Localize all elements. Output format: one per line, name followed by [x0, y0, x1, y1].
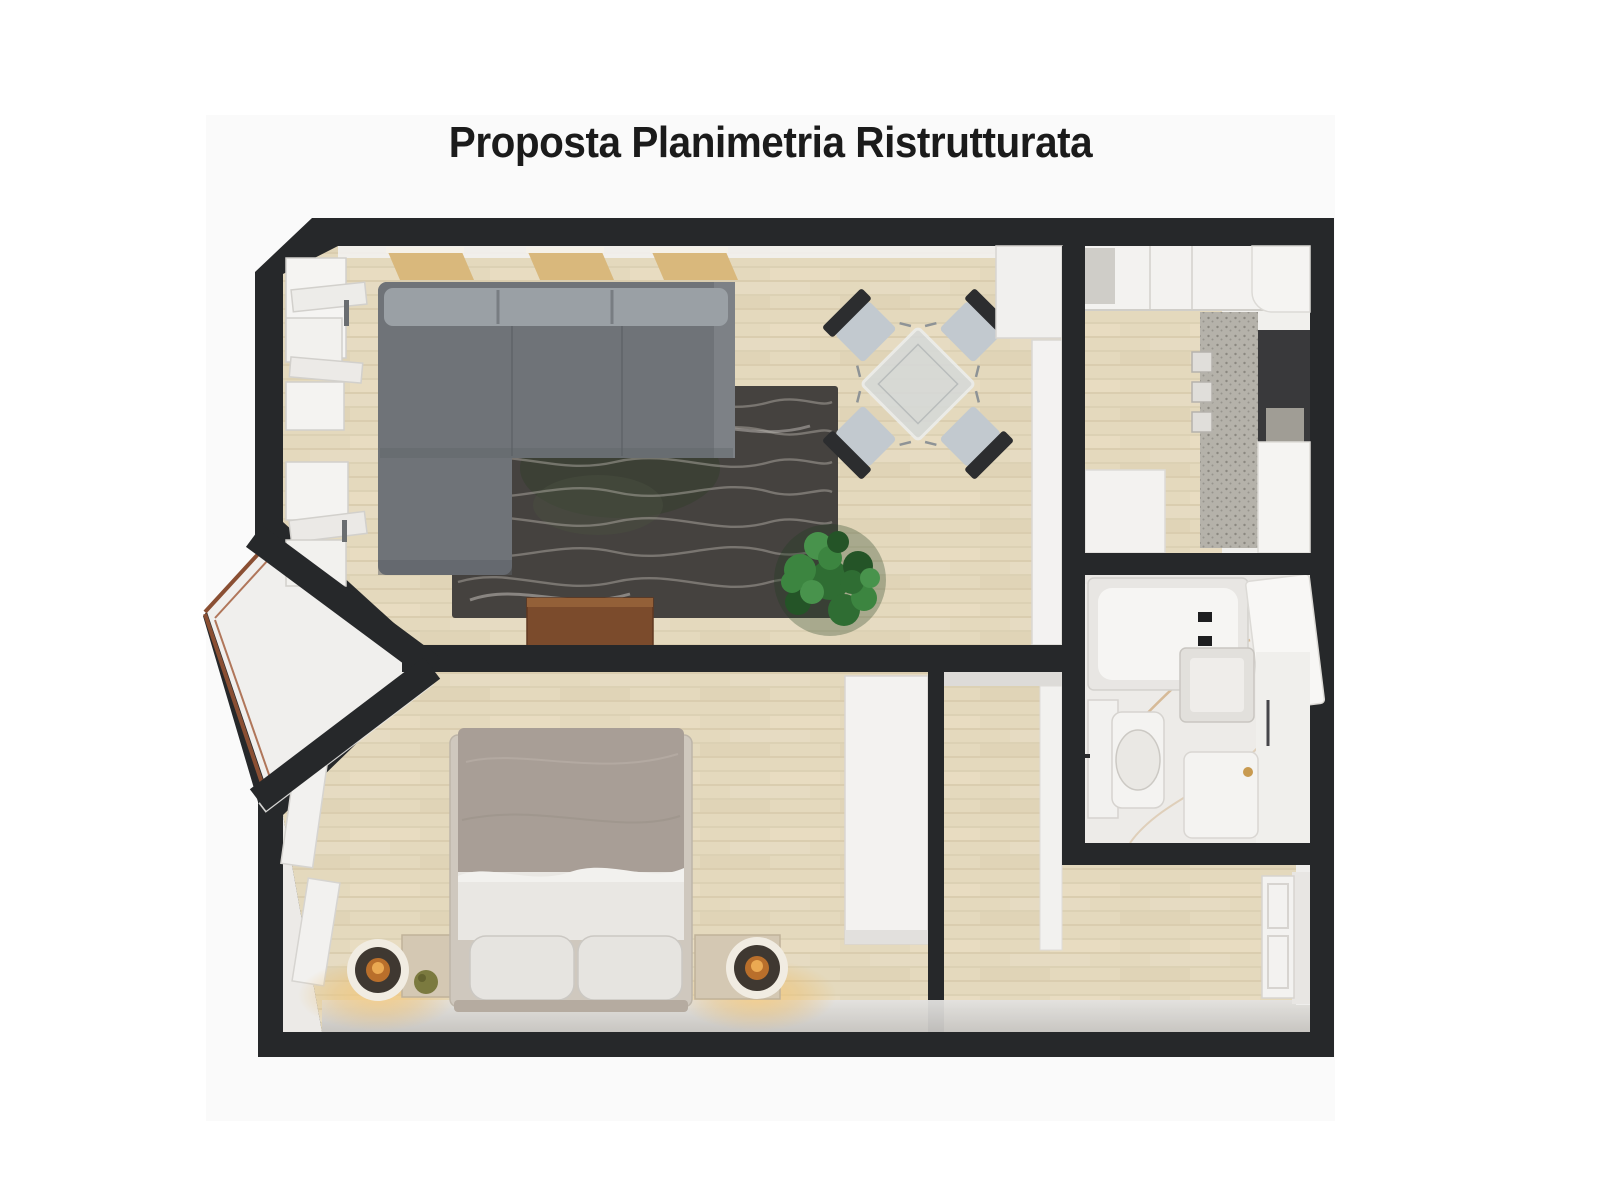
bed-pillow: [470, 936, 574, 1000]
bathroom: [1078, 574, 1325, 844]
floor-plan-image: Proposta Planimetria Ristrutturata: [0, 0, 1600, 1200]
sofa-backrest: [384, 288, 728, 326]
corridor-cabinet: [1040, 686, 1062, 950]
vanity-cabinet: [1184, 752, 1258, 838]
bathroom-tall-cabinet: [1256, 652, 1310, 844]
bathtub-faucet: [1198, 612, 1212, 622]
kitchen-corner-unit: [1252, 246, 1310, 312]
floor-plan: [0, 0, 1600, 1200]
bathroom-bottom-wall: [1062, 843, 1334, 865]
ring-lamp-left: [347, 939, 409, 1001]
bedroom-hallway-wall: [928, 672, 944, 948]
living-bedroom-wall: [402, 645, 1085, 672]
bed-pillow: [578, 936, 682, 1000]
bed-sheet-fold: [458, 872, 684, 940]
potted-plant: [774, 524, 886, 636]
living-room-wardrobe: [1032, 340, 1062, 645]
bathroom-left-wall: [1062, 575, 1085, 865]
sink-basin: [1180, 648, 1254, 722]
kitchen-sink: [1266, 408, 1304, 442]
decor-ball: [414, 970, 438, 994]
living-kitchen-wall: [1062, 246, 1085, 553]
kitchen-counter-left: [1085, 248, 1115, 304]
double-bed: [450, 728, 692, 1012]
bedroom-wardrobe: [845, 676, 928, 944]
corner-cabinet: [996, 246, 1062, 338]
cooktop: [1192, 352, 1212, 432]
toilet: [1078, 700, 1164, 818]
fridge-column: [1258, 442, 1310, 553]
bed-headboard: [454, 1000, 688, 1012]
kitchen-island-block: [1085, 470, 1165, 553]
page-title: Proposta Planimetria Ristrutturata: [251, 118, 1290, 168]
bed-duvet: [458, 728, 684, 878]
kitchen-bathroom-wall: [1062, 553, 1334, 575]
wall-shelves: [386, 247, 738, 280]
entry-door: [1262, 872, 1310, 1004]
ring-lamp-right: [726, 937, 788, 999]
